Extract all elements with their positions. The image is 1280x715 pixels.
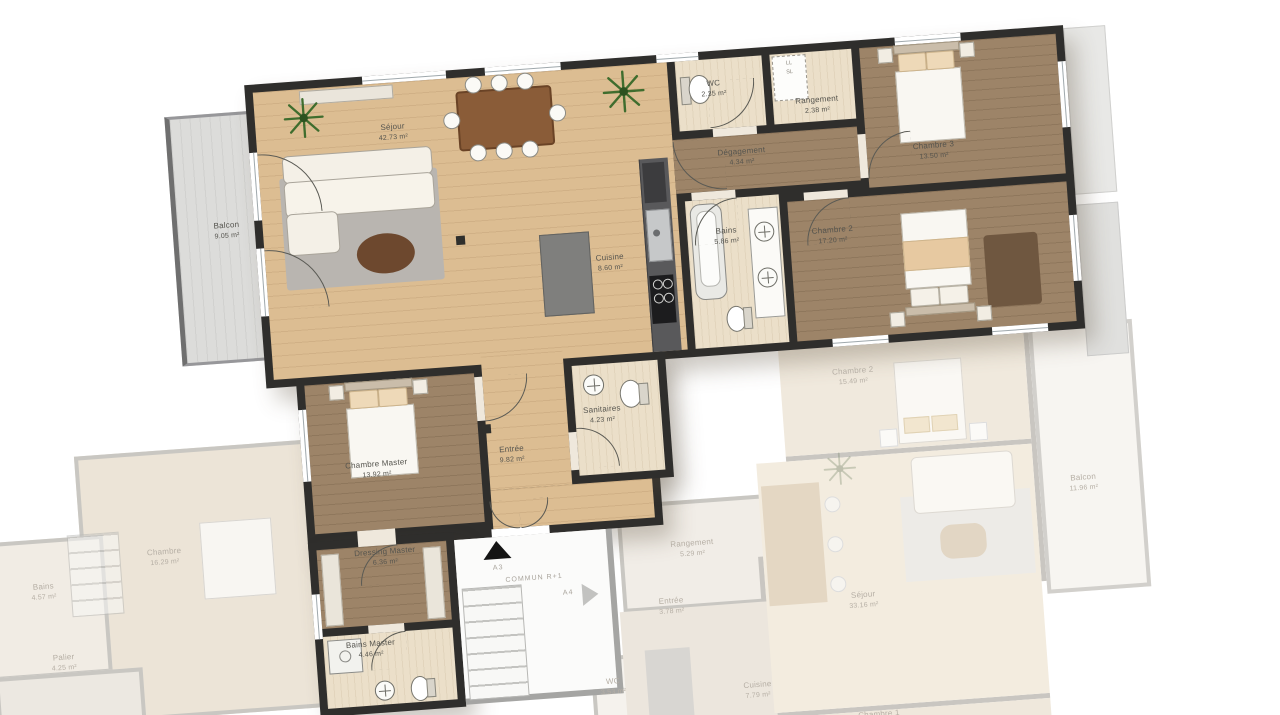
ghost-label-wc: WC3.53 m² — [600, 675, 627, 699]
ghost-pillow — [903, 416, 930, 434]
bed-blanket — [902, 237, 970, 272]
ghost-stairs — [67, 532, 125, 618]
room-label-sejour: Séjour42.73 m² — [378, 120, 409, 145]
nightstand — [959, 42, 975, 58]
nightstand — [328, 385, 344, 401]
kitchen-appliance — [642, 162, 667, 204]
room-label-balcon: Balcon9.05 m² — [213, 219, 240, 243]
ghost-label-cuisine: Cuisine7.79 m² — [743, 678, 773, 702]
bed-pillow — [898, 52, 927, 72]
plant-icon — [281, 96, 326, 141]
ghost-room-balcon — [1028, 319, 1151, 594]
toilet-icon — [426, 678, 436, 698]
room-label-cuisine: Cuisine8.60 m² — [595, 251, 625, 275]
sofa-chaise — [286, 211, 341, 257]
ghost-kitchen-counter — [645, 647, 696, 715]
room-label-chambre2: Chambre 217.20 m² — [811, 223, 854, 248]
ghost-label-chambre2: Chambre 215.49 m² — [832, 364, 875, 389]
room-label-chambre-master: Chambre Master13.92 m² — [345, 456, 409, 483]
bed-pillow — [926, 50, 955, 70]
ghost-pillow — [931, 414, 958, 432]
structural-post — [482, 424, 492, 434]
stair-direction-arrow-up — [482, 540, 511, 560]
ghost-dining-table — [761, 482, 828, 606]
ghost-plant-icon — [821, 449, 860, 488]
nightstand — [890, 312, 906, 328]
room-label-degagement: Dégagement4.34 m² — [717, 144, 766, 170]
ghost-label-rangement: Rangement5.29 m² — [670, 536, 715, 562]
room-label-bains: Bains5.86 m² — [713, 224, 740, 248]
ghost-coffee-table — [939, 522, 987, 559]
toilet-icon — [743, 307, 754, 330]
bed-pillow — [910, 287, 940, 307]
room-label-entree: Entrée9.82 m² — [499, 443, 526, 467]
toilet-icon — [638, 383, 650, 406]
ghost-nightstand — [969, 422, 988, 441]
ghost-label-palier: Palier4.25 m² — [51, 651, 78, 675]
bedroom-rug — [983, 232, 1042, 308]
ghost-label-entree: Entrée3.78 m² — [658, 594, 685, 618]
structural-post — [456, 236, 466, 246]
kitchen-island — [539, 231, 595, 316]
marker-a3: A3 — [493, 564, 504, 572]
bed-pillow — [939, 285, 969, 305]
room-label-rangement: Rangement2.38 m² — [795, 93, 840, 119]
plant-icon — [600, 68, 647, 115]
room-label-dressing-master: Dressing Master6.36 m² — [354, 544, 417, 571]
bed-pillow — [378, 387, 408, 407]
room-label-sanitaires: Sanitaires4.23 m² — [583, 402, 622, 427]
nightstand — [976, 305, 992, 321]
marker-a4: A4 — [563, 589, 574, 597]
ghost-label-bains: Bains4.57 m² — [30, 580, 57, 604]
ghost-label-chambre: Chambre16.29 m² — [147, 545, 183, 570]
room-label-bains-master: Bains Master4.46 m² — [346, 637, 397, 663]
ghost-sofa — [910, 450, 1016, 514]
nightstand — [412, 379, 428, 395]
common-stairs — [462, 584, 530, 700]
room-label-wc: WC2.35 m² — [700, 77, 727, 101]
ghost-bed — [199, 517, 276, 599]
room-label-chambre3: Chambre 313.50 m² — [912, 138, 955, 163]
floor-plan-canvas: Rangement5.29 m² Entrée3.78 m² WC3.53 m²… — [0, 0, 1280, 715]
ghost-label-sejour: Séjour33.16 m² — [848, 588, 879, 613]
ghost-nightstand — [879, 428, 898, 447]
room-entree-floor-upper — [481, 351, 573, 491]
bed-pillow — [349, 389, 379, 409]
ghost-label-balcon: Balcon11.96 m² — [1068, 471, 1098, 496]
stair-direction-arrow-right — [582, 583, 600, 606]
dryer-label: SL — [773, 67, 806, 79]
nightstand — [877, 48, 893, 64]
